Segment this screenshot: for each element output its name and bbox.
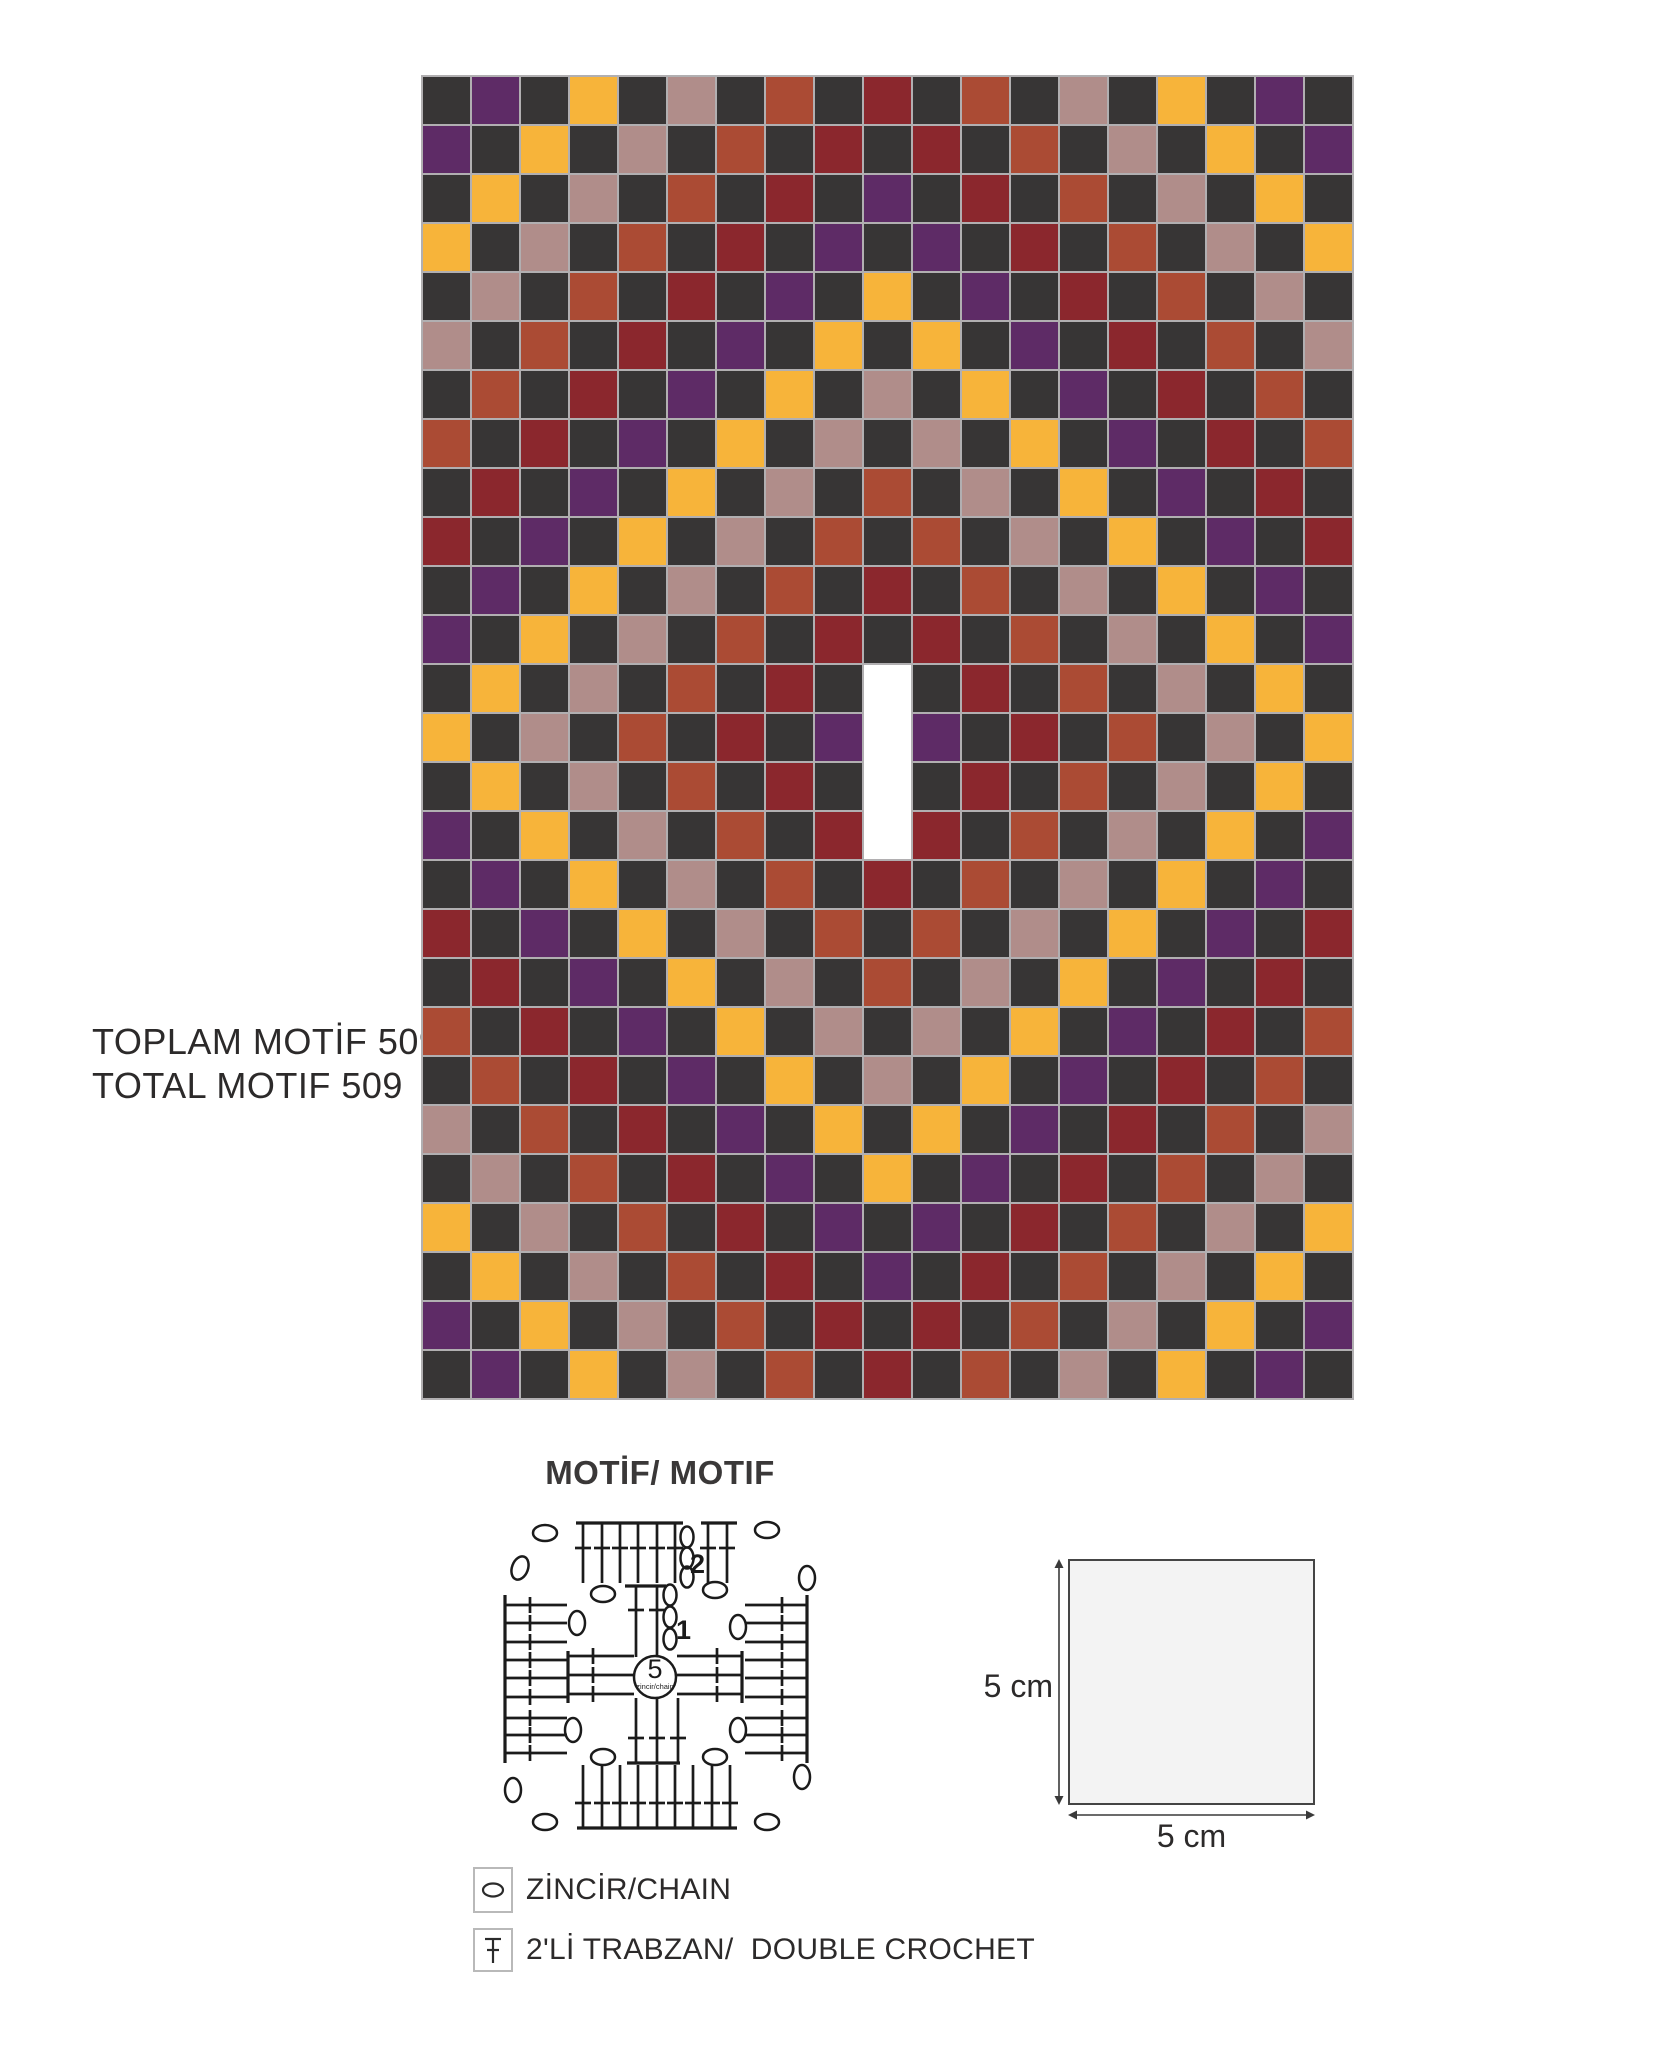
motif-cell-rust [619,1204,666,1251]
motif-cell-yellow [1305,1204,1352,1251]
motif-cell-maroon [1305,518,1352,565]
motif-cell-maroon [521,420,568,467]
motif-cell-maroon [668,273,715,320]
motif-cell-rust [423,1008,470,1055]
motif-cell-dark-gray [717,77,764,124]
motif-cell-dark-gray [521,567,568,614]
motif-cell-yellow [570,567,617,614]
motif-cell-dark-gray [668,322,715,369]
motif-cell-rust [668,665,715,712]
motif-cell-dark-gray [913,371,960,418]
motif-cell-maroon [1256,959,1303,1006]
motif-cell-dark-gray [1207,1253,1254,1300]
motif-cell-maroon [1305,910,1352,957]
motif-cell-dark-gray [1109,273,1156,320]
chain-oval-icon [664,1607,677,1628]
motif-cell-dark-gray [913,469,960,516]
motif-cell-maroon [717,224,764,271]
chain-oval-icon [730,1615,746,1639]
motif-cell-rose-mauve [717,518,764,565]
motif-cell-purple [423,812,470,859]
center-ring-count: 5 [647,1654,662,1684]
motif-cell-dark-gray [668,812,715,859]
motif-cell-rust [1060,175,1107,222]
motif-cell-rose-mauve [1158,1253,1205,1300]
motif-cell-maroon [766,1253,813,1300]
motif-cell-rose-mauve [1060,567,1107,614]
motif-cell-rust [521,1106,568,1153]
motif-cell-dark-gray [1011,371,1058,418]
motif-cell-rose-mauve [1060,1351,1107,1398]
motif-cell-dark-gray [766,1204,813,1251]
motif-cell-yellow [1207,126,1254,173]
motif-cell-dark-gray [521,273,568,320]
motif-cell-dark-gray [521,1253,568,1300]
chain-oval-icon [508,1554,531,1582]
motif-cell-yellow [570,77,617,124]
motif-cell-dark-gray [766,714,813,761]
motif-cell-dark-gray [815,1057,862,1104]
motif-cell-dark-gray [717,273,764,320]
motif-cell-dark-gray [1207,665,1254,712]
motif-cell-dark-gray [717,1057,764,1104]
motif-cell-rust [766,1351,813,1398]
motif-cell-dark-gray [1060,518,1107,565]
motif-cell-dark-gray [1109,1253,1156,1300]
motif-cell-dark-gray [521,1057,568,1104]
motif-cell-dark-gray [1109,175,1156,222]
motif-cell-dark-gray [521,1351,568,1398]
motif-cell-maroon [864,861,911,908]
motif-cell-dark-gray [913,763,960,810]
motif-cell-dark-gray [472,1106,519,1153]
motif-cell-dark-gray [423,1253,470,1300]
motif-cell-dark-gray [668,1106,715,1153]
motif-cell-dark-gray [1256,1106,1303,1153]
motif-cell-dark-gray [766,910,813,957]
motif-cell-dark-gray [1109,861,1156,908]
total-motif-line-turkish: TOPLAM MOTİF 509 [92,1020,439,1064]
motif-cell-purple [472,567,519,614]
motif-cell-dark-gray [1011,273,1058,320]
motif-cell-rust [766,861,813,908]
motif-cell-rose-mauve [815,420,862,467]
motif-cell-maroon [570,1057,617,1104]
motif-cell-maroon [619,322,666,369]
center-slit [864,665,911,859]
motif-cell-rust [864,959,911,1006]
motif-cell-dark-gray [815,567,862,614]
motif-cell-dark-gray [766,1302,813,1349]
motif-cell-purple [1011,322,1058,369]
motif-cell-dark-gray [1207,763,1254,810]
motif-cell-dark-gray [864,518,911,565]
motif-cell-purple [1158,959,1205,1006]
motif-cell-dark-gray [423,1057,470,1104]
motif-cell-dark-gray [1060,1106,1107,1153]
motif-cell-rose-mauve [1158,175,1205,222]
motif-cell-dark-gray [619,861,666,908]
motif-cell-purple [864,175,911,222]
motif-cell-rose-mauve [472,1155,519,1202]
motif-cell-dark-gray [1158,420,1205,467]
motif-cell-dark-gray [472,322,519,369]
total-motif-label: TOPLAM MOTİF 509 TOTAL MOTIF 509 [92,1020,439,1108]
motif-cell-rose-mauve [570,763,617,810]
motif-cell-dark-gray [864,126,911,173]
motif-cell-purple [1207,518,1254,565]
motif-cell-rust [864,469,911,516]
motif-cell-rose-mauve [1256,1155,1303,1202]
motif-cell-dark-gray [1011,1253,1058,1300]
motif-cell-maroon [815,1302,862,1349]
motif-cell-dark-gray [423,273,470,320]
motif-cell-yellow [766,1057,813,1104]
motif-cell-rust [766,77,813,124]
motif-cell-maroon [570,371,617,418]
chain-oval-icon [755,1522,779,1538]
motif-cell-dark-gray [668,1008,715,1055]
motif-cell-dark-gray [668,126,715,173]
motif-cell-yellow [1011,420,1058,467]
motif-cell-rose-mauve [570,1253,617,1300]
motif-cell-dark-gray [1109,371,1156,418]
motif-cell-purple [423,126,470,173]
motif-cell-rust [815,518,862,565]
motif-cell-dark-gray [521,77,568,124]
motif-cell-dark-gray [1207,77,1254,124]
motif-cell-dark-gray [619,665,666,712]
motif-cell-rust [1060,1253,1107,1300]
motif-cell-dark-gray [472,126,519,173]
motif-cell-dark-gray [1207,1057,1254,1104]
motif-cell-rust [1011,812,1058,859]
motif-cell-yellow [619,518,666,565]
motif-cell-dark-gray [1060,1204,1107,1251]
chain-oval-icon [664,1585,677,1606]
motif-cell-yellow [1158,1351,1205,1398]
motif-cell-dark-gray [962,420,1009,467]
motif-cell-dark-gray [570,126,617,173]
motif-cell-yellow [1256,763,1303,810]
motif-cell-dark-gray [1305,469,1352,516]
chain-oval-icon [569,1611,585,1635]
motif-cell-purple [1207,910,1254,957]
motif-cell-dark-gray [1158,126,1205,173]
motif-cell-dark-gray [1060,910,1107,957]
motif-cell-rust [815,910,862,957]
motif-cell-dark-gray [619,371,666,418]
motif-cell-purple [1109,1008,1156,1055]
motif-cell-rose-mauve [668,77,715,124]
motif-cell-rust [619,224,666,271]
motif-cell-dark-gray [717,1351,764,1398]
motif-cell-dark-gray [1158,1008,1205,1055]
motif-cell-dark-gray [570,1106,617,1153]
motif-cell-dark-gray [766,1106,813,1153]
motif-cell-rose-mauve [864,1057,911,1104]
motif-cell-dark-gray [1256,1204,1303,1251]
motif-cell-purple [668,1057,715,1104]
motif-cell-yellow [717,1008,764,1055]
motif-cell-dark-gray [962,1204,1009,1251]
motif-cell-rose-mauve [619,1302,666,1349]
motif-cell-dark-gray [1011,665,1058,712]
motif-cell-purple [619,420,666,467]
total-motif-line-english: TOTAL MOTIF 509 [92,1064,439,1108]
motif-cell-dark-gray [815,77,862,124]
motif-cell-rust [1256,371,1303,418]
motif-cell-dark-gray [472,714,519,761]
motif-cell-yellow [1207,1302,1254,1349]
motif-cell-rose-mauve [766,469,813,516]
motif-cell-rust [1158,1155,1205,1202]
motif-cell-rust [1158,273,1205,320]
motif-cell-rose-mauve [423,322,470,369]
motif-cell-yellow [423,714,470,761]
motif-cell-dark-gray [570,420,617,467]
motif-cell-dark-gray [766,322,813,369]
motif-cell-purple [1305,1302,1352,1349]
motif-cell-maroon [962,763,1009,810]
motif-cell-rose-mauve [668,861,715,908]
motif-cell-dark-gray [668,1204,715,1251]
motif-cell-purple [815,1204,862,1251]
motif-cell-purple [472,861,519,908]
motif-cell-dark-gray [1158,1204,1205,1251]
motif-cell-dark-gray [668,910,715,957]
motif-cell-dark-gray [1158,518,1205,565]
motif-cell-dark-gray [1060,812,1107,859]
motif-heading: MOTİF/ MOTIF [490,1454,830,1492]
motif-cell-rose-mauve [619,812,666,859]
motif-cell-dark-gray [1109,567,1156,614]
motif-cell-dark-gray [619,1351,666,1398]
motif-cell-dark-gray [423,861,470,908]
motif-cell-rose-mauve [1109,812,1156,859]
motif-cell-dark-gray [1207,469,1254,516]
motif-cell-dark-gray [1256,518,1303,565]
motif-cell-maroon [423,518,470,565]
motif-cell-dark-gray [1011,1057,1058,1104]
motif-cell-dark-gray [1305,959,1352,1006]
motif-cell-purple [668,371,715,418]
motif-cell-rust [668,763,715,810]
motif-cell-dark-gray [1207,175,1254,222]
motif-cell-dark-gray [1109,469,1156,516]
motif-cell-dark-gray [1256,420,1303,467]
motif-cell-rose-mauve [619,616,666,663]
motif-cell-dark-gray [717,567,764,614]
motif-cell-dark-gray [472,1204,519,1251]
motif-cell-purple [962,273,1009,320]
motif-cell-dark-gray [913,861,960,908]
motif-cell-yellow [472,665,519,712]
motif-cell-maroon [864,77,911,124]
motif-cell-yellow [668,959,715,1006]
motif-cell-maroon [766,665,813,712]
motif-cell-purple [1060,1057,1107,1104]
motif-cell-dark-gray [913,77,960,124]
motif-cell-rust [717,812,764,859]
motif-cell-yellow [521,1302,568,1349]
motif-cell-dark-gray [570,224,617,271]
motif-cell-yellow [864,273,911,320]
motif-cell-purple [1011,1106,1058,1153]
motif-cell-dark-gray [472,224,519,271]
motif-cell-dark-gray [1060,322,1107,369]
motif-cell-rust [962,861,1009,908]
motif-cell-dark-gray [962,1302,1009,1349]
motif-cell-dark-gray [423,763,470,810]
motif-cell-dark-gray [570,1204,617,1251]
motif-cell-rose-mauve [864,371,911,418]
motif-cell-dark-gray [913,1253,960,1300]
motif-cell-dark-gray [1256,910,1303,957]
motif-cell-rose-mauve [815,1008,862,1055]
motif-cell-purple [1256,861,1303,908]
motif-cell-purple [423,1302,470,1349]
chain-oval-icon [799,1566,815,1590]
motif-cell-dark-gray [1207,273,1254,320]
motif-cell-dark-gray [717,175,764,222]
motif-cell-yellow [1011,1008,1058,1055]
motif-cell-yellow [521,616,568,663]
motif-cell-dark-gray [864,1204,911,1251]
motif-cell-maroon [913,812,960,859]
double-crochet-icon [475,1930,511,1970]
motif-cell-dark-gray [423,175,470,222]
motif-cell-dark-gray [766,812,813,859]
motif-cell-dark-gray [1011,1351,1058,1398]
motif-cell-purple [1305,126,1352,173]
motif-cell-dark-gray [815,959,862,1006]
chain-oval-icon [533,1525,557,1541]
motif-cell-yellow [864,1155,911,1202]
motif-cell-yellow [423,1204,470,1251]
motif-cell-purple [1109,420,1156,467]
motif-cell-rose-mauve [962,469,1009,516]
motif-cell-dark-gray [668,1302,715,1349]
motif-cell-yellow [521,126,568,173]
motif-cell-dark-gray [619,77,666,124]
motif-cell-rust [1011,126,1058,173]
motif-cell-yellow [1256,665,1303,712]
motif-cell-rose-mauve [521,224,568,271]
motif-cell-maroon [815,126,862,173]
motif-cell-dark-gray [1305,1253,1352,1300]
motif-cell-rose-mauve [570,665,617,712]
motif-cell-dark-gray [1305,77,1352,124]
motif-cell-rust [717,1302,764,1349]
motif-cell-dark-gray [472,1008,519,1055]
motif-cell-dark-gray [1207,1155,1254,1202]
motif-cell-maroon [1060,1155,1107,1202]
chain-oval-icon [591,1586,615,1602]
motif-cell-maroon [913,616,960,663]
motif-cell-dark-gray [1060,616,1107,663]
motif-cell-purple [619,1008,666,1055]
motif-cell-rust [1305,420,1352,467]
motif-cell-dark-gray [1305,1351,1352,1398]
motif-cell-maroon [1207,1008,1254,1055]
chain-oval-icon [730,1718,746,1742]
motif-cell-rust [1207,1106,1254,1153]
motif-cell-dark-gray [1011,175,1058,222]
motif-cell-dark-gray [1011,959,1058,1006]
motif-cell-rust [668,1253,715,1300]
motif-cell-yellow [1305,224,1352,271]
motif-cell-dark-gray [864,1008,911,1055]
motif-cell-purple [1305,616,1352,663]
motif-cell-dark-gray [668,224,715,271]
motif-cell-purple [521,518,568,565]
motif-cell-dark-gray [1207,861,1254,908]
motif-cell-dark-gray [619,469,666,516]
gauge-width-label: 5 cm [1068,1818,1315,1855]
motif-cell-dark-gray [521,371,568,418]
motif-cell-dark-gray [815,665,862,712]
motif-cell-dark-gray [913,175,960,222]
motif-cell-rose-mauve [766,959,813,1006]
motif-cell-yellow [766,371,813,418]
motif-cell-yellow [913,322,960,369]
motif-cell-rust [1060,763,1107,810]
motif-cell-dark-gray [472,420,519,467]
motif-cell-dark-gray [1060,714,1107,761]
motif-cell-dark-gray [1158,714,1205,761]
motif-cell-rose-mauve [1207,1204,1254,1251]
motif-cell-dark-gray [619,567,666,614]
motif-cell-dark-gray [570,1302,617,1349]
motif-cell-yellow [1060,959,1107,1006]
motif-cell-rose-mauve [1158,665,1205,712]
motif-cell-dark-gray [1256,812,1303,859]
motif-cell-dark-gray [1109,1351,1156,1398]
motif-cell-rust [619,714,666,761]
motif-cell-purple [717,1106,764,1153]
motif-cell-dark-gray [766,518,813,565]
motif-cell-dark-gray [1158,812,1205,859]
motif-cell-dark-gray [1305,371,1352,418]
motif-cell-dark-gray [864,1302,911,1349]
motif-cell-dark-gray [1158,322,1205,369]
motif-cell-rust [1256,1057,1303,1104]
motif-cell-dark-gray [962,812,1009,859]
motif-cell-dark-gray [913,959,960,1006]
motif-cell-yellow [717,420,764,467]
motif-cell-rose-mauve [1305,322,1352,369]
motif-cell-maroon [1256,469,1303,516]
motif-cell-dark-gray [864,420,911,467]
motif-cell-rose-mauve [570,175,617,222]
motif-cell-dark-gray [913,1057,960,1104]
motif-cell-rose-mauve [521,1204,568,1251]
motif-cell-dark-gray [1060,1008,1107,1055]
motif-cell-yellow [1109,518,1156,565]
motif-cell-dark-gray [815,469,862,516]
motif-cell-dark-gray [1256,616,1303,663]
motif-cell-dark-gray [962,714,1009,761]
motif-cell-dark-gray [619,1253,666,1300]
motif-cell-yellow [913,1106,960,1153]
motif-cell-rose-mauve [1207,224,1254,271]
motif-cell-purple [1256,567,1303,614]
motif-cell-rust [570,1155,617,1202]
motif-cell-dark-gray [472,1302,519,1349]
motif-cell-dark-gray [1256,1008,1303,1055]
motif-cell-dark-gray [1060,1302,1107,1349]
